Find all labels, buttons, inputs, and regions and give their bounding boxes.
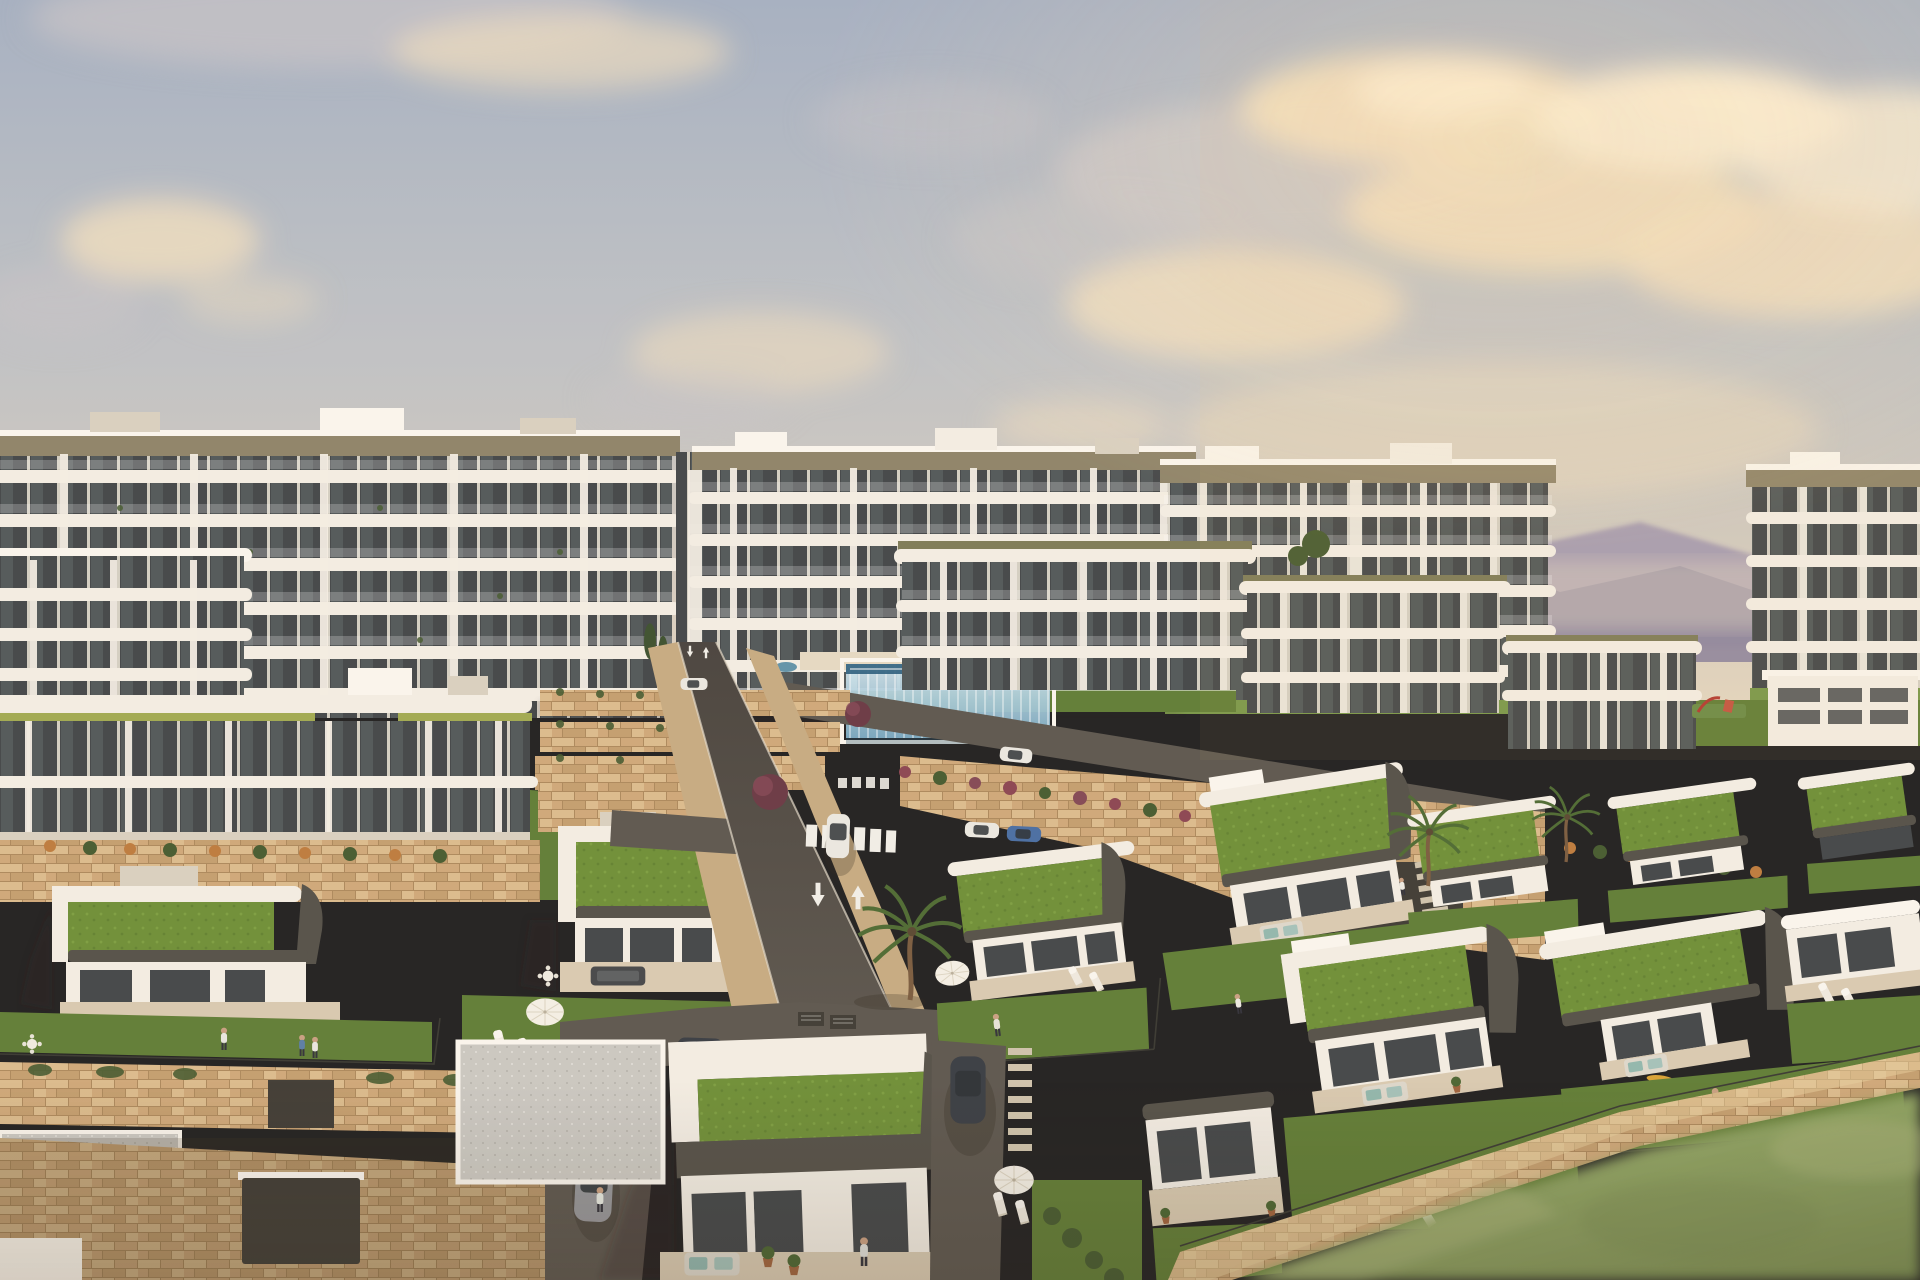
architectural-render xyxy=(0,0,1920,1280)
atmosphere xyxy=(0,0,1920,1280)
